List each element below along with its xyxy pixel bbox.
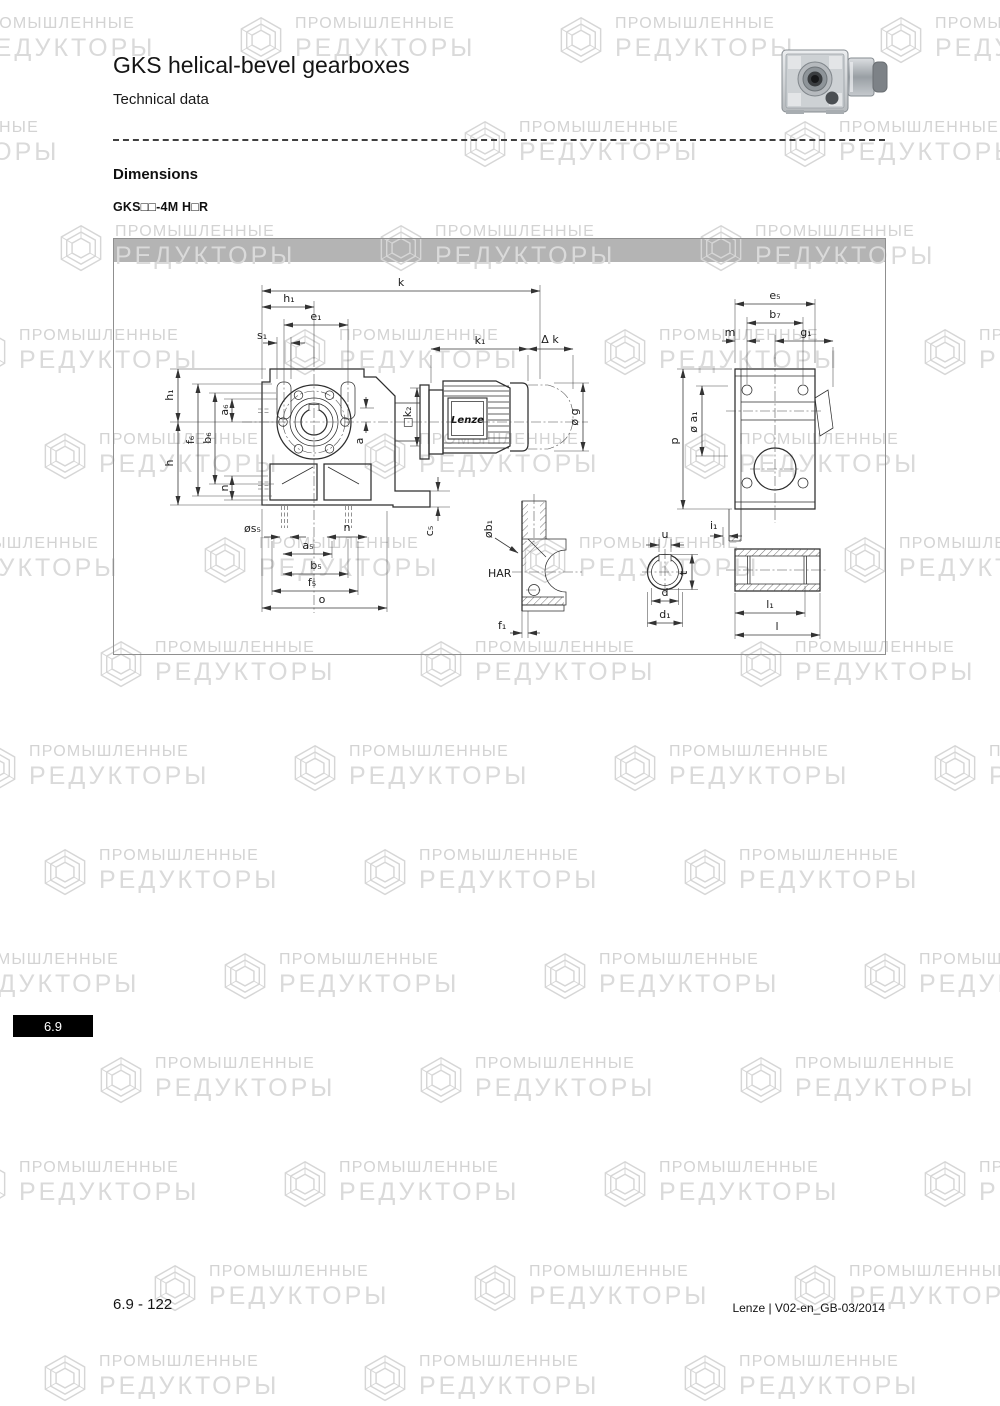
page-title: GKS helical-bevel gearboxes <box>113 52 410 79</box>
dim-label-a6: a₆ <box>218 404 231 416</box>
dim-label-b5: b₅ <box>310 559 321 572</box>
dim-label-s1: s₁ <box>257 329 267 342</box>
dim-label-d: d <box>662 586 669 599</box>
motor-logo: Lenze <box>451 415 484 426</box>
dim-label-n-left: n <box>218 484 231 491</box>
hollow-shaft-view: l₁ l <box>726 549 828 639</box>
dim-label-h: h <box>163 459 176 466</box>
section-heading: Dimensions <box>113 166 198 183</box>
dashed-divider <box>113 139 885 141</box>
dim-label-h1-left: h₁ <box>163 389 176 400</box>
dim-label-a5: a₅ <box>302 539 313 552</box>
dim-label-f1: f₁ <box>498 619 506 632</box>
dim-label-a: a <box>353 438 366 445</box>
dim-label-l: l <box>775 620 778 633</box>
dim-label-c5: c₅ <box>423 526 436 536</box>
dim-label-g: ø g <box>568 408 581 425</box>
dim-label-b6: b₆ <box>201 432 214 444</box>
shaft-cross-section: u t d d₁ <box>642 528 698 627</box>
dim-label-f6: f₆ <box>184 435 197 444</box>
dim-label-e1: e₁ <box>310 310 321 323</box>
dim-label-k: k <box>398 276 405 289</box>
page-subtitle: Technical data <box>113 91 209 108</box>
dim-label-d1: d₁ <box>659 608 670 621</box>
dim-label-h1-top: h₁ <box>283 292 294 305</box>
dimension-drawing-frame: Lenze k h₁ e₁ <box>113 238 886 655</box>
har-section-view: øb₁ HAR f₁ <box>482 494 582 638</box>
dim-label-l1: l₁ <box>766 598 773 611</box>
dim-label-m: m <box>725 326 736 339</box>
side-view-dimensions: e₅ b₇ m g₁ p ø a₁ <box>668 289 833 545</box>
dim-label-e5: e₅ <box>769 289 780 302</box>
dim-label-p: p <box>668 437 681 444</box>
model-code: GKS□□-4M H□R <box>113 200 208 214</box>
dim-label-k1: k₁ <box>475 334 486 347</box>
dim-label-b7: b₇ <box>769 308 780 321</box>
front-view: Lenze <box>242 357 588 613</box>
chapter-tab: 6.9 <box>13 1015 93 1037</box>
dim-label-u: u <box>662 528 669 541</box>
dim-label-dk: Δ k <box>541 333 559 346</box>
dim-label-s5: øs₅ <box>244 522 261 535</box>
technical-drawing: Lenze k h₁ e₁ <box>114 239 885 654</box>
dim-label-a1: ø a₁ <box>687 411 700 432</box>
dim-label-i1: i₁ <box>710 519 717 532</box>
dim-label-g1: g₁ <box>800 326 811 339</box>
dim-label-t: t <box>677 570 690 575</box>
dim-label-n-bottom: n <box>344 521 351 534</box>
page: GKS helical-bevel gearboxes Technical da… <box>0 0 1000 1395</box>
footer-doc-reference: Lenze | V02-en_GB-03/2014 <box>732 1301 885 1315</box>
dim-label-b1: øb₁ <box>482 520 495 538</box>
dim-label-o: o <box>319 593 326 606</box>
product-photo <box>776 42 896 120</box>
side-view <box>726 357 833 541</box>
gearbox-photo-graphic <box>782 50 887 114</box>
dim-label-k2: □k₂ <box>401 406 414 427</box>
view-label-har: HAR <box>488 567 512 580</box>
footer-page-number: 6.9 - 122 <box>113 1296 172 1313</box>
dim-label-f5: f₅ <box>308 576 316 589</box>
